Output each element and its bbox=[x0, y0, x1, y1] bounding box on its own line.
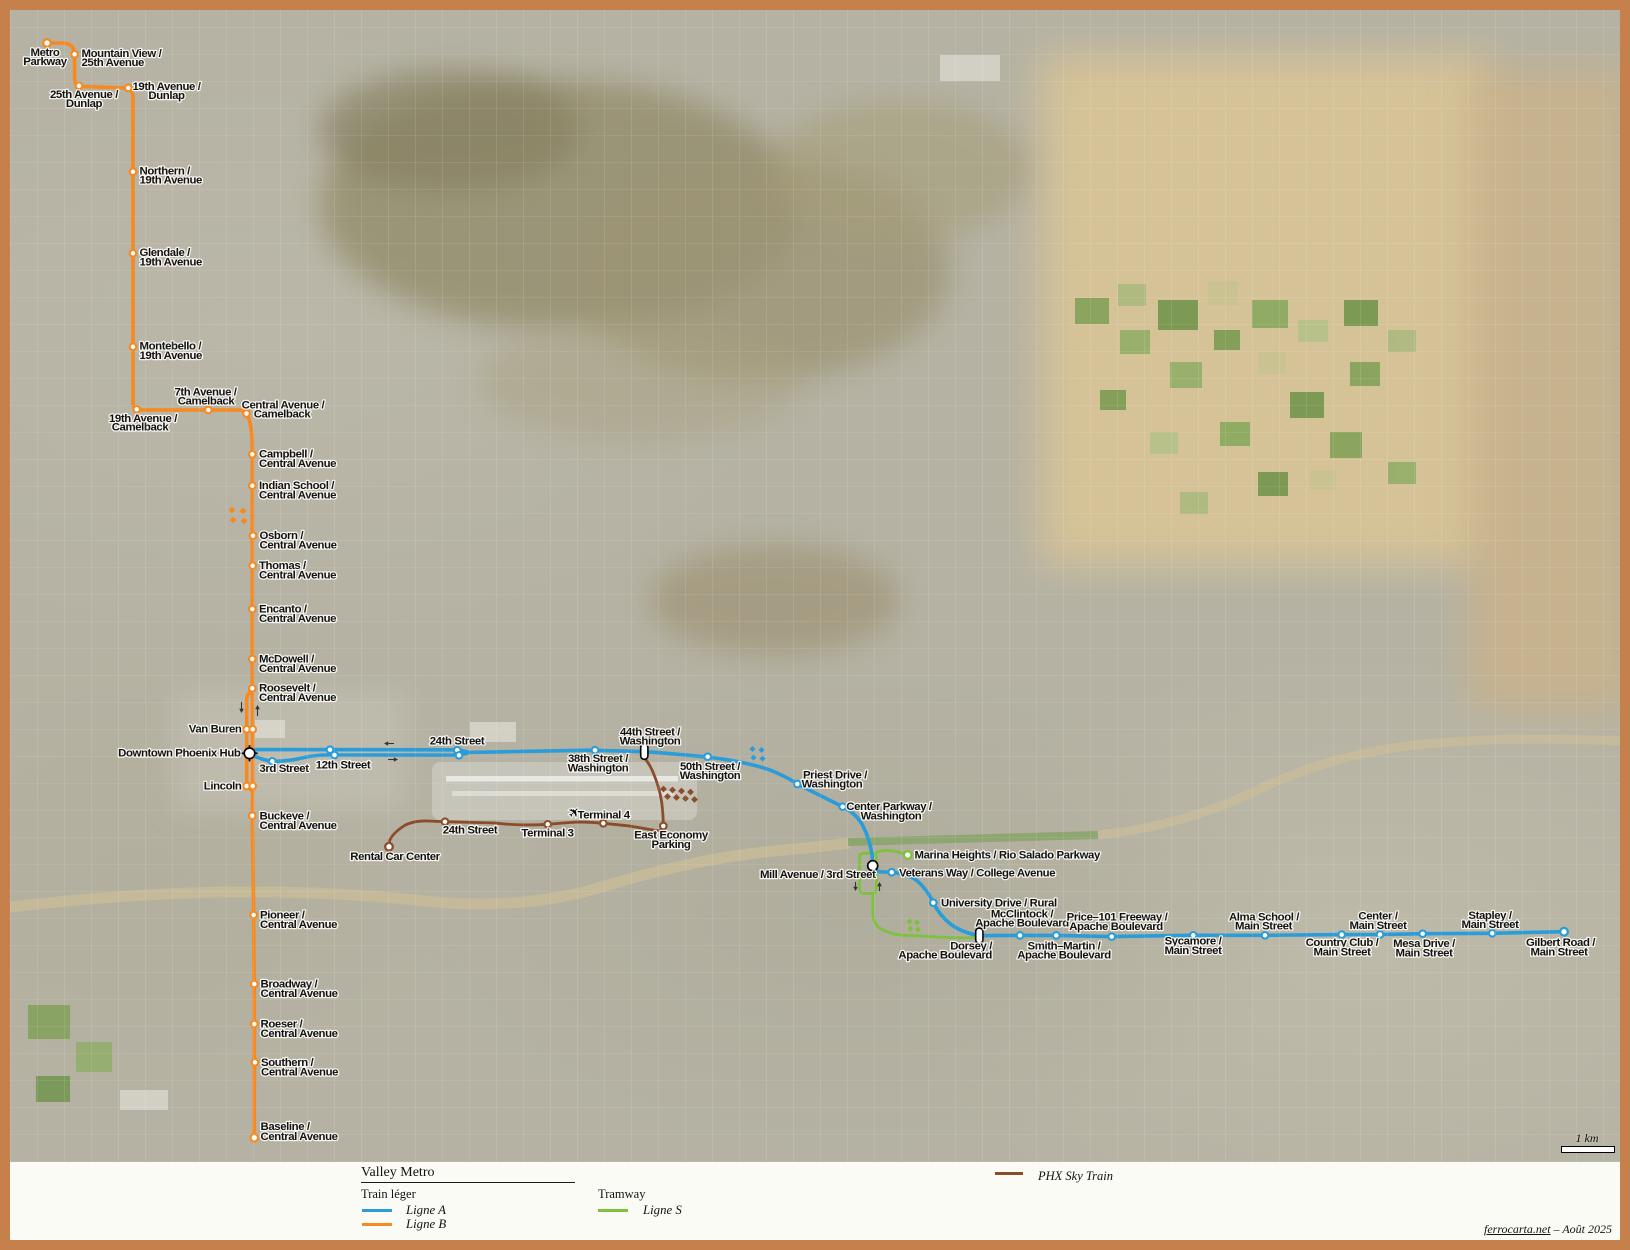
station-price-101-freeway-apache-boulevard bbox=[1108, 933, 1115, 940]
station-buckeye-central-avenue bbox=[249, 812, 256, 819]
station-label-osborn-central-avenue: Central Avenue bbox=[260, 540, 337, 552]
legend-title: Valley Metro bbox=[361, 1165, 434, 1181]
station-metro-parkway bbox=[43, 39, 51, 47]
station-label-center-main-street: Main Street bbox=[1350, 920, 1408, 932]
station-mcclintock-apache-boulevard bbox=[1017, 932, 1024, 939]
station-label-19th-avenue-camelback: Camelback bbox=[112, 422, 170, 434]
station-label-mcclintock-apache-boulevard: Apache Boulevard bbox=[975, 918, 1069, 930]
station-veterans-way-college-avenue bbox=[888, 869, 895, 876]
station-center-parkway-washington bbox=[839, 803, 846, 810]
station-northern-19th-avenue bbox=[130, 168, 137, 175]
station-label-dorsey-apache-boulevard: Apache Boulevard bbox=[898, 950, 992, 962]
station-label-44th-street-washington: Washington bbox=[620, 735, 681, 747]
station-label-50th-street-washington: Washington bbox=[680, 770, 741, 782]
station-label-24th-street-phx-sky-train: 24th Street bbox=[443, 825, 498, 837]
station-mesa-drive-main-street bbox=[1419, 930, 1426, 937]
station-label-buckeye-central-avenue: Central Avenue bbox=[260, 820, 337, 832]
attribution-date: – Août 2025 bbox=[1551, 1222, 1612, 1236]
station-19th-avenue-dunlap bbox=[125, 85, 132, 92]
direction-arrow bbox=[853, 882, 858, 891]
station-roosevelt-central-avenue bbox=[249, 685, 256, 692]
station-label-southern-central-avenue: Central Avenue bbox=[261, 1067, 338, 1079]
route-ligne-b bbox=[47, 43, 252, 690]
scale-bar-label: 1 km bbox=[1557, 1131, 1617, 1146]
legend-ligne-s: Ligne S bbox=[643, 1203, 682, 1218]
station-label-mcdowell-central-avenue: Central Avenue bbox=[259, 663, 336, 675]
station-indian-school-central-avenue bbox=[249, 482, 256, 489]
legend-band bbox=[10, 1162, 1620, 1240]
route-ligne-b-seg3 bbox=[252, 790, 254, 1138]
station-label-encanto-central-avenue: Central Avenue bbox=[259, 613, 336, 625]
farmland-southwest bbox=[28, 1005, 112, 1102]
station-label-25th-avenue-dunlap: Dunlap bbox=[66, 98, 103, 110]
station-baseline-central-avenue bbox=[251, 1134, 259, 1142]
depot-diamonds-s bbox=[907, 919, 922, 933]
legend-ligne-b: Ligne B bbox=[406, 1217, 446, 1232]
station-label-roeser-central-avenue: Central Avenue bbox=[261, 1028, 338, 1040]
station-label-stapley-main-street: Main Street bbox=[1462, 919, 1520, 931]
station-pioneer-central-avenue bbox=[250, 912, 257, 919]
ligne-s-swatch bbox=[598, 1209, 628, 1213]
route-ligne-s-seg1 bbox=[875, 850, 908, 855]
station-encanto-central-avenue bbox=[249, 606, 256, 613]
station-19th-avenue-camelback bbox=[133, 406, 140, 413]
station-label-19th-avenue-dunlap: Dunlap bbox=[148, 90, 185, 102]
station-mountain-view-25th-avenue bbox=[71, 51, 78, 58]
station-label-terminal-3: Terminal 3 bbox=[521, 828, 573, 840]
station-label-van-buren: Van Buren bbox=[189, 724, 242, 736]
station-label-lincoln: Lincoln bbox=[204, 780, 242, 792]
station-label-downtown-phoenix-hub: Downtown Phoenix Hub bbox=[118, 748, 241, 760]
transit-map-svg: ✈MetroParkwayMountain View /25th Avenue2… bbox=[10, 10, 1620, 1162]
valley-metro-map-page: ✈MetroParkwayMountain View /25th Avenue2… bbox=[0, 0, 1630, 1250]
station-lincoln bbox=[243, 783, 256, 790]
legend-phx-sky-train: PHX Sky Train bbox=[1038, 1169, 1113, 1184]
station-label-glendale-19th-avenue: 19th Avenue bbox=[140, 257, 203, 269]
station-label-mesa-drive-main-street: Main Street bbox=[1396, 947, 1454, 959]
station-7th-avenue-camelback bbox=[205, 407, 212, 414]
legend-rule bbox=[361, 1182, 575, 1183]
station-priest-drive-washington bbox=[794, 781, 801, 788]
depot-diamonds-a bbox=[750, 746, 766, 762]
ligne-b-swatch bbox=[362, 1223, 392, 1227]
station-southern-central-avenue bbox=[252, 1059, 259, 1066]
station-label-baseline-central-avenue: Central Avenue bbox=[261, 1131, 338, 1143]
station-label-indian-school-central-avenue: Central Avenue bbox=[259, 490, 336, 502]
station-label-thomas-central-avenue: Central Avenue bbox=[259, 570, 336, 582]
station-label-montebello-19th-avenue: 19th Avenue bbox=[140, 350, 203, 362]
station-label-country-club-main-street: Main Street bbox=[1314, 947, 1372, 959]
station-label-alma-school-main-street: Main Street bbox=[1235, 921, 1293, 933]
station-label-gilbert-road-main-street: Main Street bbox=[1531, 946, 1589, 958]
station-alma-school-main-street bbox=[1262, 932, 1269, 939]
station-roeser-central-avenue bbox=[251, 1021, 258, 1028]
satellite-map: ✈MetroParkwayMountain View /25th Avenue2… bbox=[10, 10, 1620, 1164]
station-rental-car-center bbox=[385, 843, 393, 851]
station-label-marina-heights-rio-salado-parkway: Marina Heights / Rio Salado Parkway bbox=[915, 850, 1101, 862]
scale-bar bbox=[1561, 1146, 1615, 1153]
station-label-priest-drive-washington: Washington bbox=[802, 779, 863, 791]
station-smith-martin-apache-boulevard bbox=[1053, 932, 1060, 939]
station-gilbert-road-main-street bbox=[1560, 928, 1568, 936]
station-label-central-avenue-camelback: Camelback bbox=[254, 409, 312, 421]
ligne-a-swatch bbox=[362, 1209, 392, 1213]
station-label-rental-car-center: Rental Car Center bbox=[350, 851, 440, 863]
station-label-northern-19th-avenue: 19th Avenue bbox=[140, 175, 203, 187]
station-university-drive-rural bbox=[930, 899, 937, 906]
station-label-terminal-4: Terminal 4 bbox=[578, 810, 631, 822]
station-label-24th-street: 24th Street bbox=[430, 735, 485, 747]
depot-diamonds-b bbox=[229, 507, 248, 525]
station-label-38th-street-washington: Washington bbox=[568, 762, 629, 774]
station-marina-heights-rio-salado-parkway bbox=[904, 851, 912, 859]
attribution: ferrocarta.net – Août 2025 bbox=[1380, 1222, 1612, 1237]
station-terminal-3 bbox=[544, 821, 551, 828]
station-label-sycamore-main-street: Main Street bbox=[1165, 945, 1223, 957]
direction-arrow bbox=[877, 882, 882, 891]
legend-ligne-a: Ligne A bbox=[406, 1203, 446, 1218]
station-broadway-central-avenue bbox=[251, 981, 258, 988]
station-label-center-parkway-washington: Washington bbox=[861, 810, 922, 822]
ferrocarta-link[interactable]: ferrocarta.net bbox=[1484, 1222, 1551, 1236]
legend-heading-tramway: Tramway bbox=[598, 1187, 645, 1202]
station-label-7th-avenue-camelback: Camelback bbox=[178, 396, 236, 408]
station-label-campbell-central-avenue: Central Avenue bbox=[259, 458, 336, 470]
station-label-metro-parkway: Parkway bbox=[23, 56, 67, 68]
station-glendale-19th-avenue bbox=[130, 250, 137, 257]
station-label-smith-martin-apache-boulevard: Apache Boulevard bbox=[1017, 950, 1111, 962]
phx-sky-train-swatch bbox=[995, 1172, 1023, 1175]
legend-heading-train-leger: Train léger bbox=[361, 1187, 416, 1202]
station-van-buren bbox=[243, 726, 256, 733]
station-24th-street bbox=[454, 747, 462, 759]
station-campbell-central-avenue bbox=[249, 451, 256, 458]
station-label-veterans-way-college-avenue: Veterans Way / College Avenue bbox=[899, 867, 1055, 879]
tempe-town-lake bbox=[848, 835, 1098, 842]
river-east bbox=[1098, 739, 1620, 835]
station-label-mill-avenue-3rd-street: Mill Avenue / 3rd Street bbox=[760, 869, 876, 881]
station-50th-street-washington bbox=[704, 753, 711, 760]
station-label-broadway-central-avenue: Central Avenue bbox=[261, 988, 338, 1000]
station-mcdowell-central-avenue bbox=[249, 656, 256, 663]
station-label-pioneer-central-avenue: Central Avenue bbox=[260, 919, 337, 931]
station-label-roosevelt-central-avenue: Central Avenue bbox=[259, 692, 336, 704]
station-thomas-central-avenue bbox=[249, 562, 256, 569]
station-label-east-economy-parking: Parking bbox=[652, 839, 691, 851]
station-osborn-central-avenue bbox=[250, 532, 257, 539]
station-label-3rd-street: 3rd Street bbox=[259, 763, 309, 775]
station-east-economy-parking bbox=[660, 823, 667, 830]
station-label-12th-street: 12th Street bbox=[316, 760, 371, 772]
station-label-price-101-freeway-apache-boulevard: Apache Boulevard bbox=[1069, 921, 1163, 933]
station-label-mountain-view-25th-avenue: 25th Avenue bbox=[82, 57, 145, 69]
station-montebello-19th-avenue bbox=[130, 343, 137, 350]
